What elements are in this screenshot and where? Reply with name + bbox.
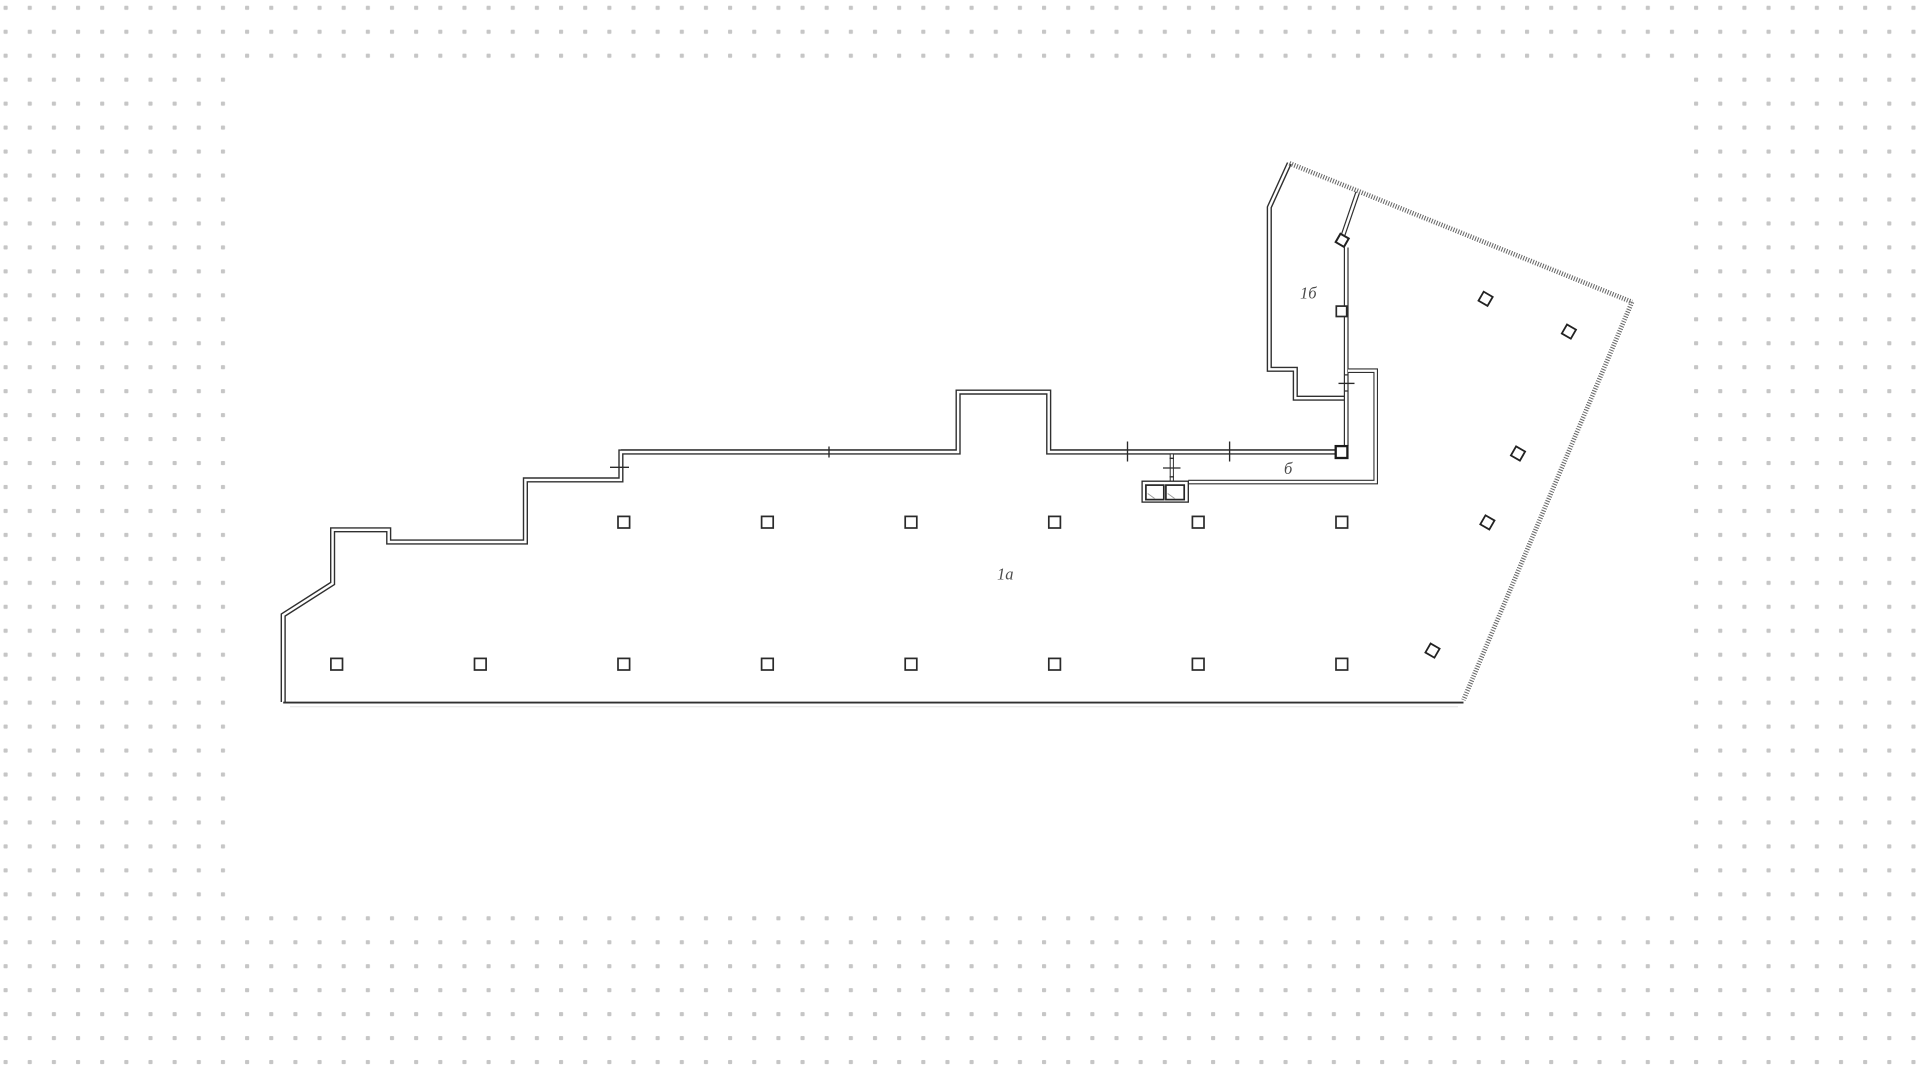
svg-text:1б: 1б xyxy=(1300,284,1317,303)
svg-text:1а: 1а xyxy=(997,565,1014,584)
svg-text:б: б xyxy=(1284,459,1293,478)
